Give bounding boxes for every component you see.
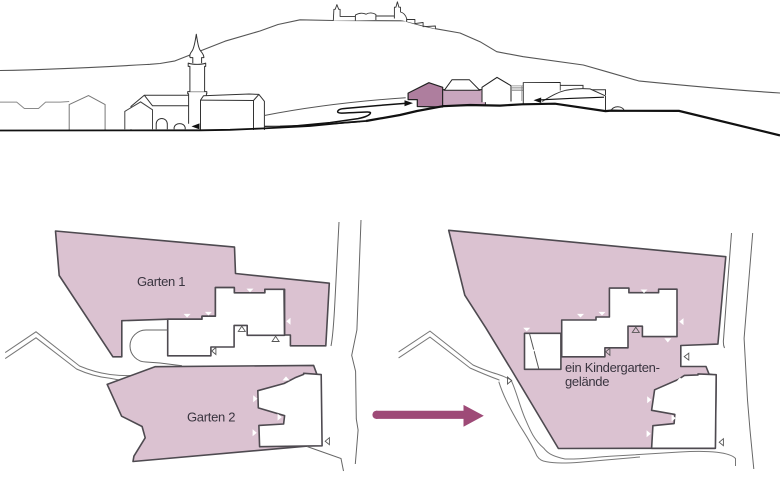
svg-text:ein Kindergarten-: ein Kindergarten- xyxy=(565,360,660,375)
svg-text:Garten 1: Garten 1 xyxy=(137,274,185,289)
svg-text:Garten 2: Garten 2 xyxy=(187,410,235,425)
svg-text:gelände: gelände xyxy=(565,374,609,389)
